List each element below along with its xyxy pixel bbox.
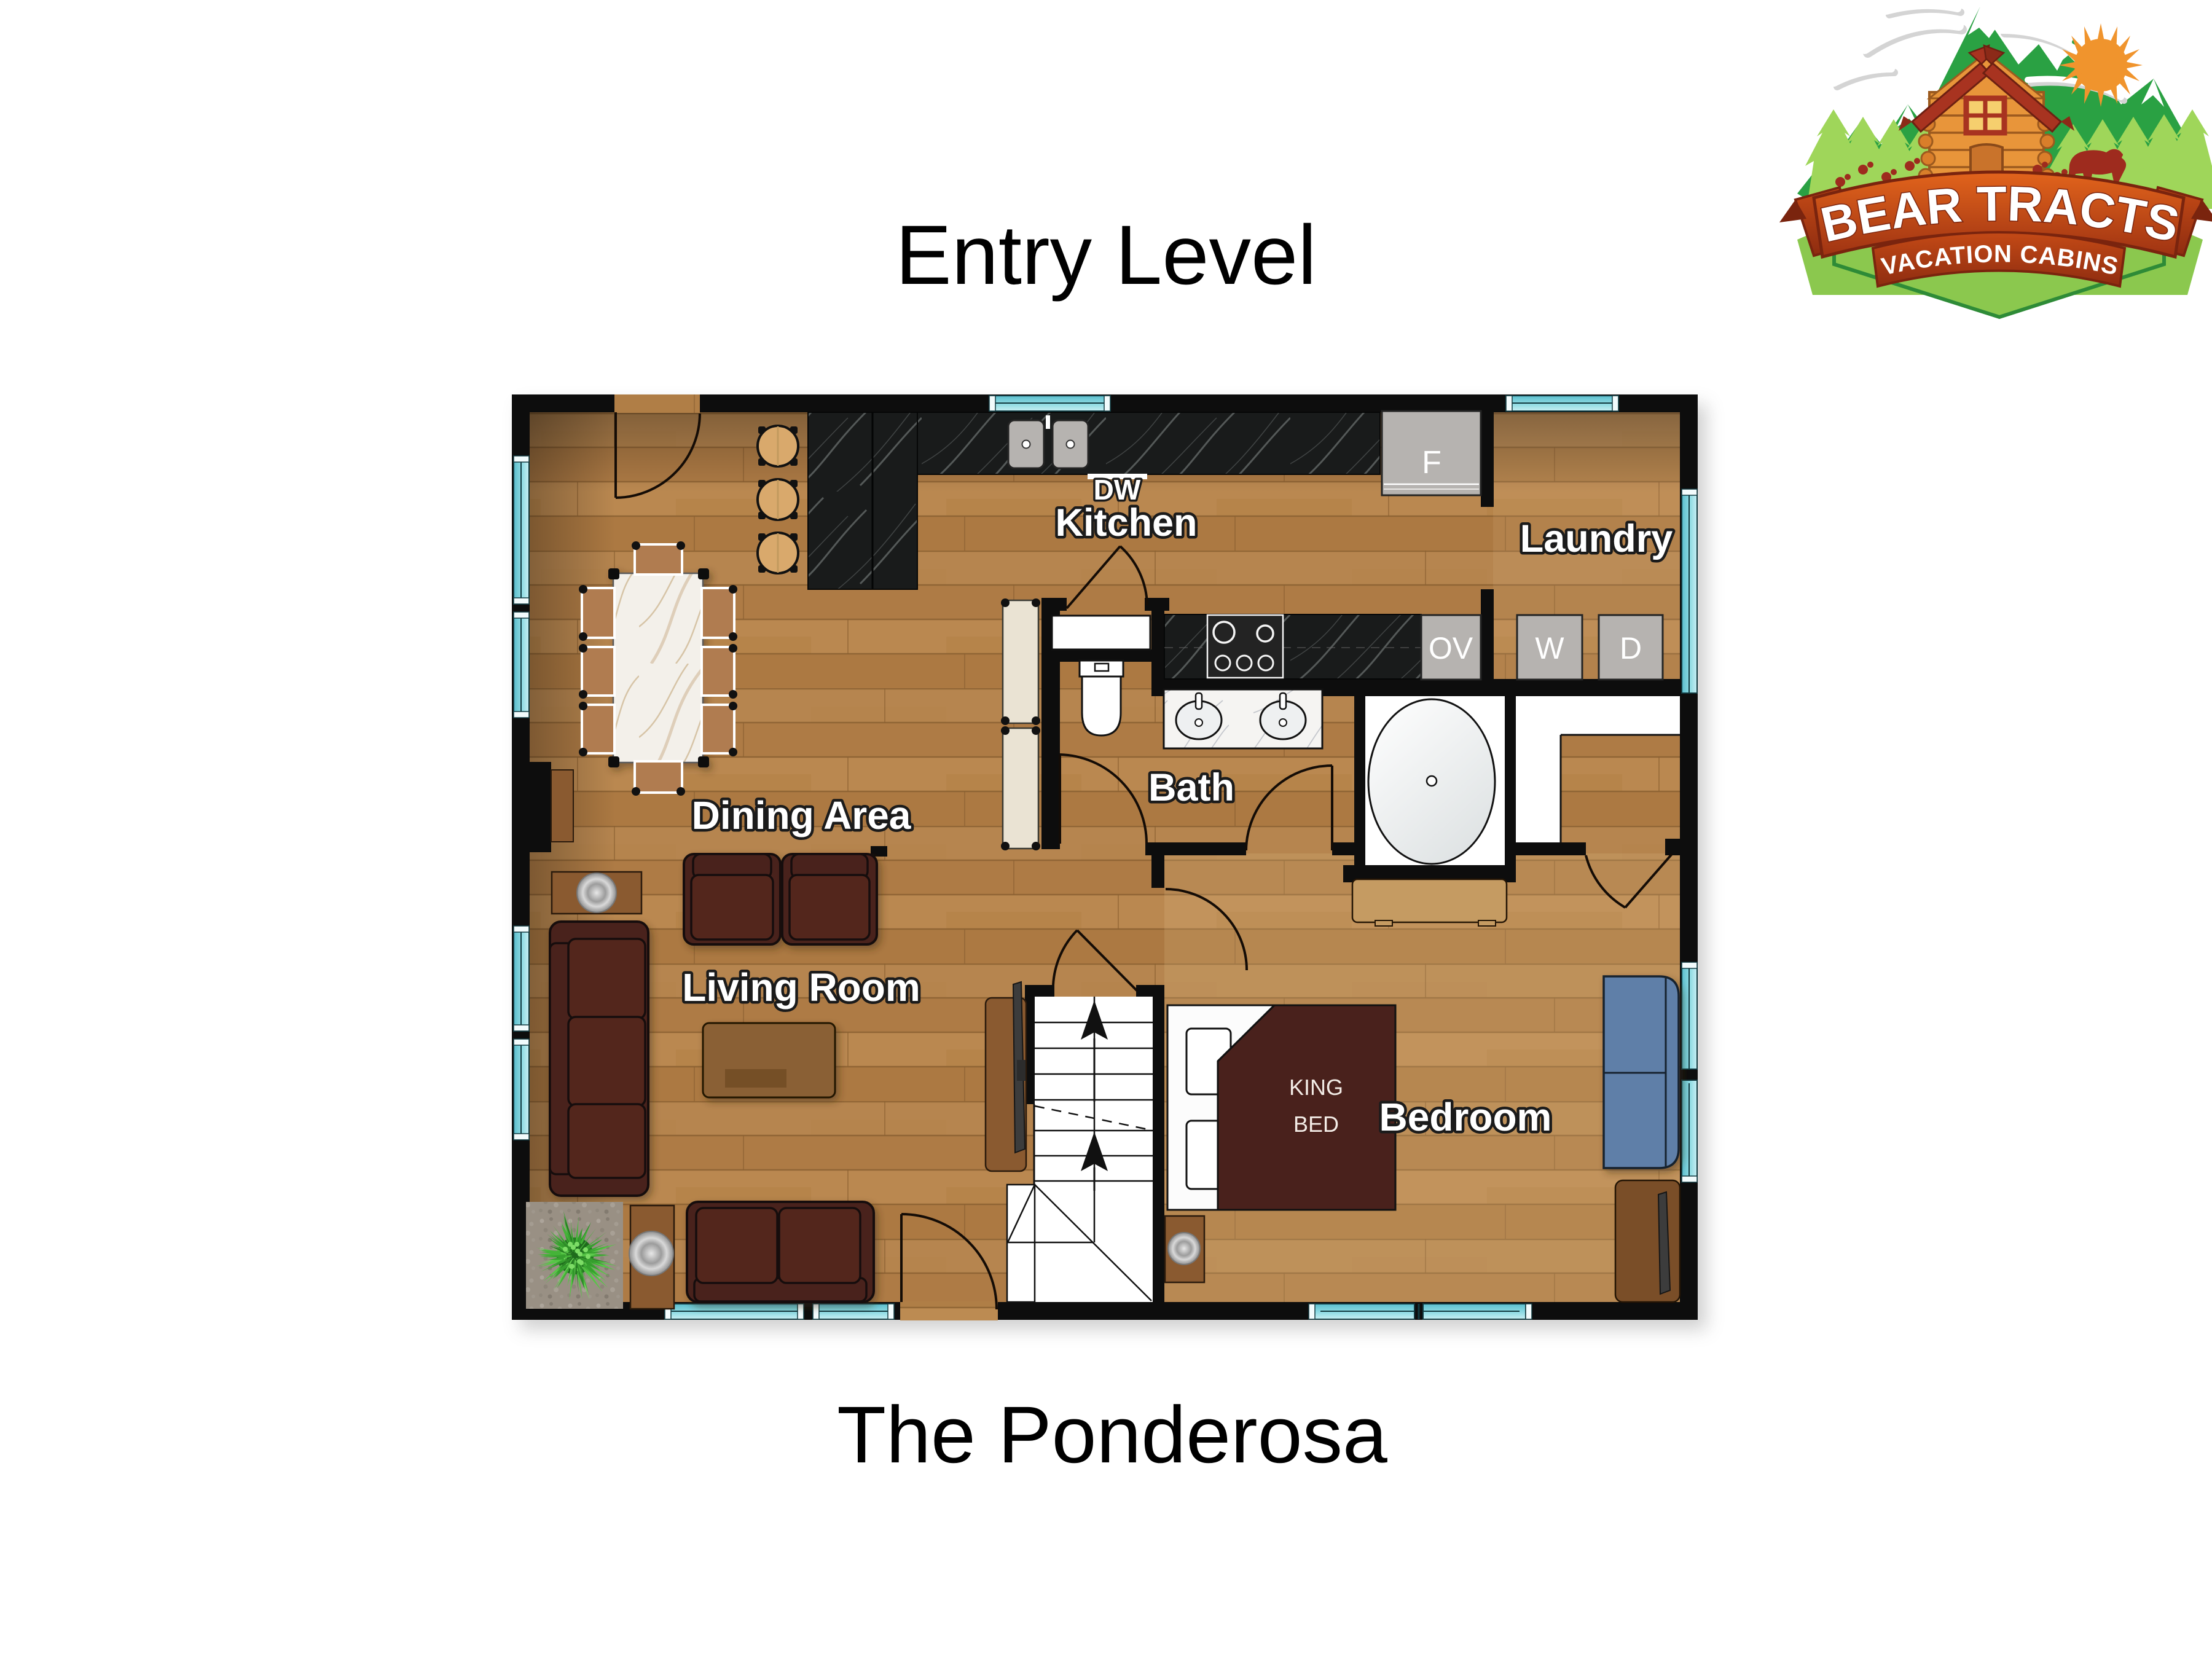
svg-text:Dining Area: Dining Area <box>692 793 911 837</box>
svg-text:Bath: Bath <box>1148 766 1234 809</box>
svg-text:F: F <box>1422 445 1441 480</box>
svg-text:BED: BED <box>1293 1112 1339 1137</box>
svg-text:Entry Level: Entry Level <box>895 208 1316 302</box>
svg-text:D: D <box>1620 631 1642 665</box>
svg-text:Bedroom: Bedroom <box>1379 1095 1552 1139</box>
svg-text:Living Room: Living Room <box>682 965 920 1010</box>
svg-text:W: W <box>1535 631 1564 665</box>
svg-text:Laundry: Laundry <box>1520 517 1673 560</box>
svg-text:The Ponderosa: The Ponderosa <box>837 1389 1387 1480</box>
svg-text:KING: KING <box>1289 1075 1343 1100</box>
svg-text:OV: OV <box>1429 631 1473 665</box>
svg-text:Kitchen: Kitchen <box>1055 501 1197 544</box>
